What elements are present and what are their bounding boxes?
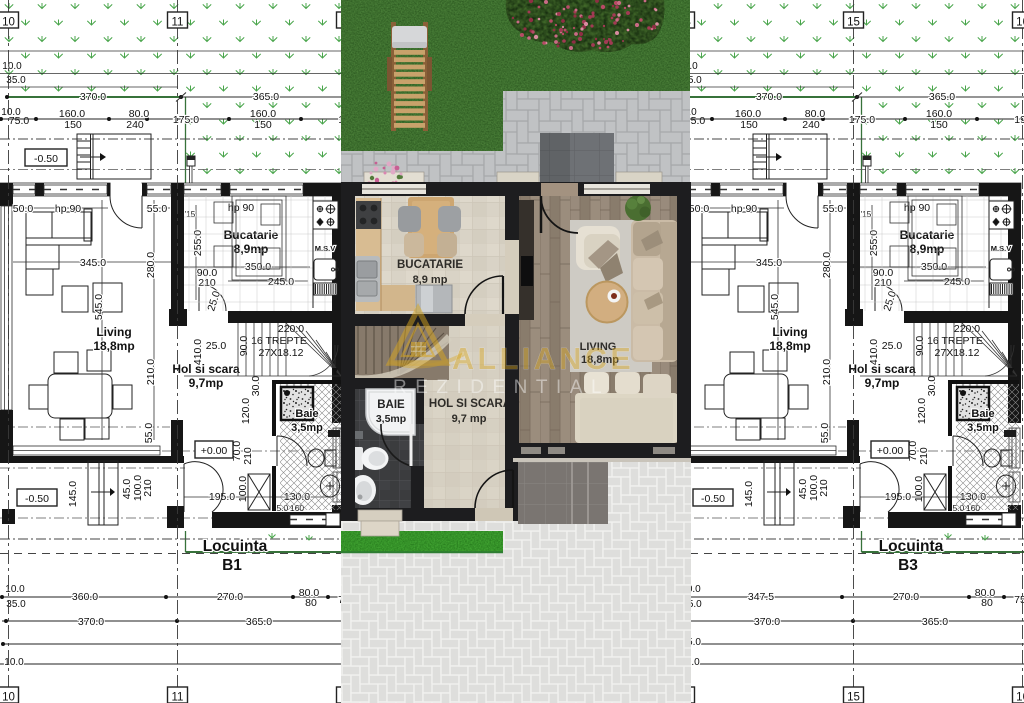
svg-text:80: 80 <box>305 597 317 609</box>
svg-text:365.0: 365.0 <box>253 91 279 103</box>
svg-text:255.0: 255.0 <box>192 230 204 256</box>
svg-text:3,5mp: 3,5mp <box>376 413 406 425</box>
svg-text:+0.00: +0.00 <box>877 445 904 457</box>
svg-text:-0.50: -0.50 <box>25 493 49 505</box>
svg-text:hp 90: hp 90 <box>55 203 81 215</box>
svg-text:210.0: 210.0 <box>145 359 157 385</box>
svg-text:350.0: 350.0 <box>245 261 271 273</box>
svg-text:150: 150 <box>740 119 758 131</box>
svg-text:270.0: 270.0 <box>893 591 919 603</box>
svg-text:16 TREPTE: 16 TREPTE <box>927 335 983 347</box>
svg-text:150: 150 <box>254 119 272 131</box>
svg-text:50.0: 50.0 <box>689 203 710 215</box>
svg-text:270.0: 270.0 <box>217 591 243 603</box>
svg-text:370.0: 370.0 <box>78 616 104 628</box>
svg-text:3,5mp: 3,5mp <box>967 422 999 434</box>
svg-text:11: 11 <box>172 692 184 703</box>
svg-text:210: 210 <box>918 447 930 465</box>
svg-text:Hol si scara: Hol si scara <box>172 362 240 376</box>
svg-text:B1: B1 <box>222 557 242 574</box>
svg-text:Baie: Baie <box>971 408 994 420</box>
svg-text:Hol si scara: Hol si scara <box>848 362 916 376</box>
svg-text:27X18.12: 27X18.12 <box>935 347 980 359</box>
svg-text:18,8mp: 18,8mp <box>93 339 134 353</box>
svg-text:16: 16 <box>1016 692 1024 703</box>
svg-text:Locuinta: Locuinta <box>879 538 944 555</box>
svg-text:HOL SI SCARA: HOL SI SCARA <box>429 398 511 410</box>
svg-text:75.0: 75.0 <box>9 115 30 127</box>
svg-text:Living: Living <box>96 325 131 339</box>
svg-text:55.0: 55.0 <box>147 203 168 215</box>
svg-text:345.0: 345.0 <box>756 257 782 269</box>
svg-text:+0.00: +0.00 <box>201 445 228 457</box>
svg-text:'15: '15 <box>185 210 196 219</box>
svg-text:545.0: 545.0 <box>93 294 105 320</box>
svg-text:10: 10 <box>2 17 15 29</box>
svg-text:Locuinta: Locuinta <box>203 538 268 555</box>
svg-text:27X18.12: 27X18.12 <box>259 347 304 359</box>
svg-text:11: 11 <box>172 17 184 29</box>
svg-text:545.0: 545.0 <box>769 294 781 320</box>
svg-text:245.0: 245.0 <box>944 276 970 288</box>
svg-text:-0.50: -0.50 <box>34 153 58 165</box>
svg-text:8,9mp: 8,9mp <box>234 242 269 256</box>
svg-text:347.5: 347.5 <box>748 591 774 603</box>
svg-text:370.0: 370.0 <box>754 616 780 628</box>
svg-text:370.0: 370.0 <box>756 91 782 103</box>
svg-text:25.0: 25.0 <box>882 340 903 352</box>
svg-text:90.0: 90.0 <box>914 336 926 357</box>
svg-text:8,9mp: 8,9mp <box>910 242 945 256</box>
svg-text:210: 210 <box>874 277 892 289</box>
svg-text:15: 15 <box>847 692 860 703</box>
svg-text:'15: '15 <box>861 210 872 219</box>
svg-text:210: 210 <box>198 277 216 289</box>
svg-text:BAIE: BAIE <box>377 399 405 411</box>
svg-text:345.0: 345.0 <box>80 257 106 269</box>
svg-text:90.0: 90.0 <box>238 336 250 357</box>
svg-text:Living: Living <box>772 325 807 339</box>
svg-text:9,7 mp: 9,7 mp <box>452 413 487 425</box>
svg-text:150: 150 <box>930 119 948 131</box>
svg-text:25.0: 25.0 <box>206 340 227 352</box>
svg-text:35.0: 35.0 <box>6 599 26 610</box>
svg-text:120.0: 120.0 <box>240 398 252 424</box>
svg-text:220.0: 220.0 <box>278 323 304 335</box>
svg-text:145.0: 145.0 <box>743 481 755 507</box>
svg-text:245.0: 245.0 <box>268 276 294 288</box>
svg-text:240: 240 <box>126 119 144 131</box>
svg-text:210: 210 <box>818 479 830 497</box>
svg-text:18,8mp: 18,8mp <box>769 339 810 353</box>
svg-text:410.0: 410.0 <box>192 339 204 365</box>
svg-text:120.0: 120.0 <box>916 398 928 424</box>
svg-text:100.0: 100.0 <box>913 476 925 502</box>
svg-text:35.0: 35.0 <box>6 75 26 86</box>
svg-text:210: 210 <box>142 479 154 497</box>
svg-text:370.0: 370.0 <box>80 91 106 103</box>
svg-text:220.0: 220.0 <box>954 323 980 335</box>
svg-text:15: 15 <box>847 17 860 29</box>
svg-text:REZIDENTIAL: REZIDENTIAL <box>393 377 610 398</box>
svg-text:365.0: 365.0 <box>929 91 955 103</box>
svg-text:365.0: 365.0 <box>922 616 948 628</box>
svg-text:BUCATARIE: BUCATARIE <box>397 259 463 271</box>
svg-text:100.0: 100.0 <box>237 476 249 502</box>
svg-text:55.0: 55.0 <box>823 203 844 215</box>
svg-text:ALLIANCE: ALLIANCE <box>452 342 634 376</box>
svg-text:55.0: 55.0 <box>819 423 831 444</box>
svg-text:-0.50: -0.50 <box>701 493 725 505</box>
svg-text:280.0: 280.0 <box>145 252 157 278</box>
svg-text:280.0: 280.0 <box>821 252 833 278</box>
svg-text:hp 90: hp 90 <box>731 203 757 215</box>
svg-text:10.0: 10.0 <box>2 61 22 72</box>
svg-text:175.0: 175.0 <box>173 114 199 126</box>
svg-text:150: 150 <box>64 119 82 131</box>
svg-text:145.0: 145.0 <box>67 481 79 507</box>
svg-text:50.0: 50.0 <box>13 203 34 215</box>
svg-text:3,5mp: 3,5mp <box>291 422 323 434</box>
svg-text:240: 240 <box>802 119 820 131</box>
svg-text:365.0: 365.0 <box>246 616 272 628</box>
svg-text:B3: B3 <box>898 557 918 574</box>
svg-text:360.0: 360.0 <box>72 591 98 603</box>
svg-text:210.0: 210.0 <box>821 359 833 385</box>
svg-text:410.0: 410.0 <box>868 339 880 365</box>
svg-text:9,7mp: 9,7mp <box>189 376 224 390</box>
svg-text:10.0: 10.0 <box>4 657 24 668</box>
svg-text:30.0: 30.0 <box>250 376 262 397</box>
svg-text:350.0: 350.0 <box>921 261 947 273</box>
svg-text:9,7mp: 9,7mp <box>865 376 900 390</box>
svg-text:Baie: Baie <box>295 408 318 420</box>
svg-text:10: 10 <box>2 692 15 703</box>
svg-text:16: 16 <box>1016 17 1024 29</box>
svg-text:175.0: 175.0 <box>849 114 875 126</box>
svg-text:55.0: 55.0 <box>143 423 155 444</box>
svg-text:210: 210 <box>242 447 254 465</box>
svg-text:30.0: 30.0 <box>926 376 938 397</box>
svg-text:80: 80 <box>981 597 993 609</box>
svg-text:8,9 mp: 8,9 mp <box>413 274 448 286</box>
svg-text:255.0: 255.0 <box>868 230 880 256</box>
svg-text:16 TREPTE: 16 TREPTE <box>251 335 307 347</box>
